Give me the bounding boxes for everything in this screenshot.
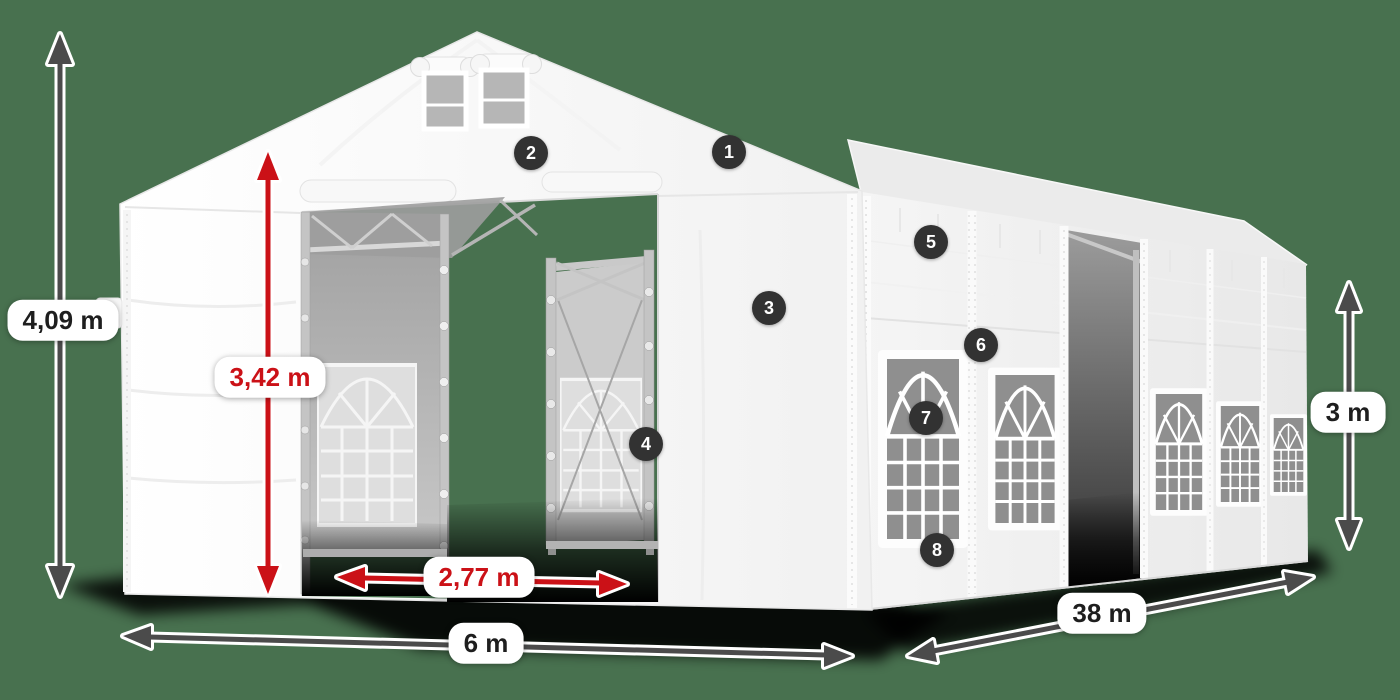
dimension-label-front-width: 6 m [449,623,524,664]
dimension-label-clear-height: 3,42 m [215,357,326,398]
tent-illustration [0,0,1400,700]
side-window-2 [988,368,1062,531]
dimension-label-side-length: 38 m [1057,593,1146,634]
callout-badge-7: 7 [909,401,943,435]
tent-product-diagram: 4,09 m 3,42 m 2,77 m 6 m 38 m 3 m 1 2 3 … [0,0,1400,700]
ground-beam [303,549,449,557]
side-window-5 [1270,414,1307,495]
vent-window-left [424,73,466,129]
rolled-door-left [300,180,456,202]
side-window-3 [1150,388,1208,516]
dimension-label-entrance-width: 2,77 m [424,557,535,598]
callout-badge-5: 5 [914,225,948,259]
side-window-1 [878,350,968,548]
rolled-door-right [542,172,662,192]
gate-ground-beam [546,541,658,549]
interior-mesh-window-left [317,365,417,525]
callout-badge-3: 3 [752,291,786,325]
callout-badge-1: 1 [712,135,746,169]
dimension-label-side-height: 3 m [1311,392,1386,433]
callout-badge-8: 8 [920,533,954,567]
callout-badge-4: 4 [629,427,663,461]
side-window-4 [1216,401,1264,507]
vent-window-right [481,70,527,126]
front-opening [301,194,658,602]
dimension-label-total-height: 4,09 m [8,300,119,341]
callout-badge-6: 6 [964,328,998,362]
callout-badge-2: 2 [514,136,548,170]
side-doorway [1066,230,1142,588]
